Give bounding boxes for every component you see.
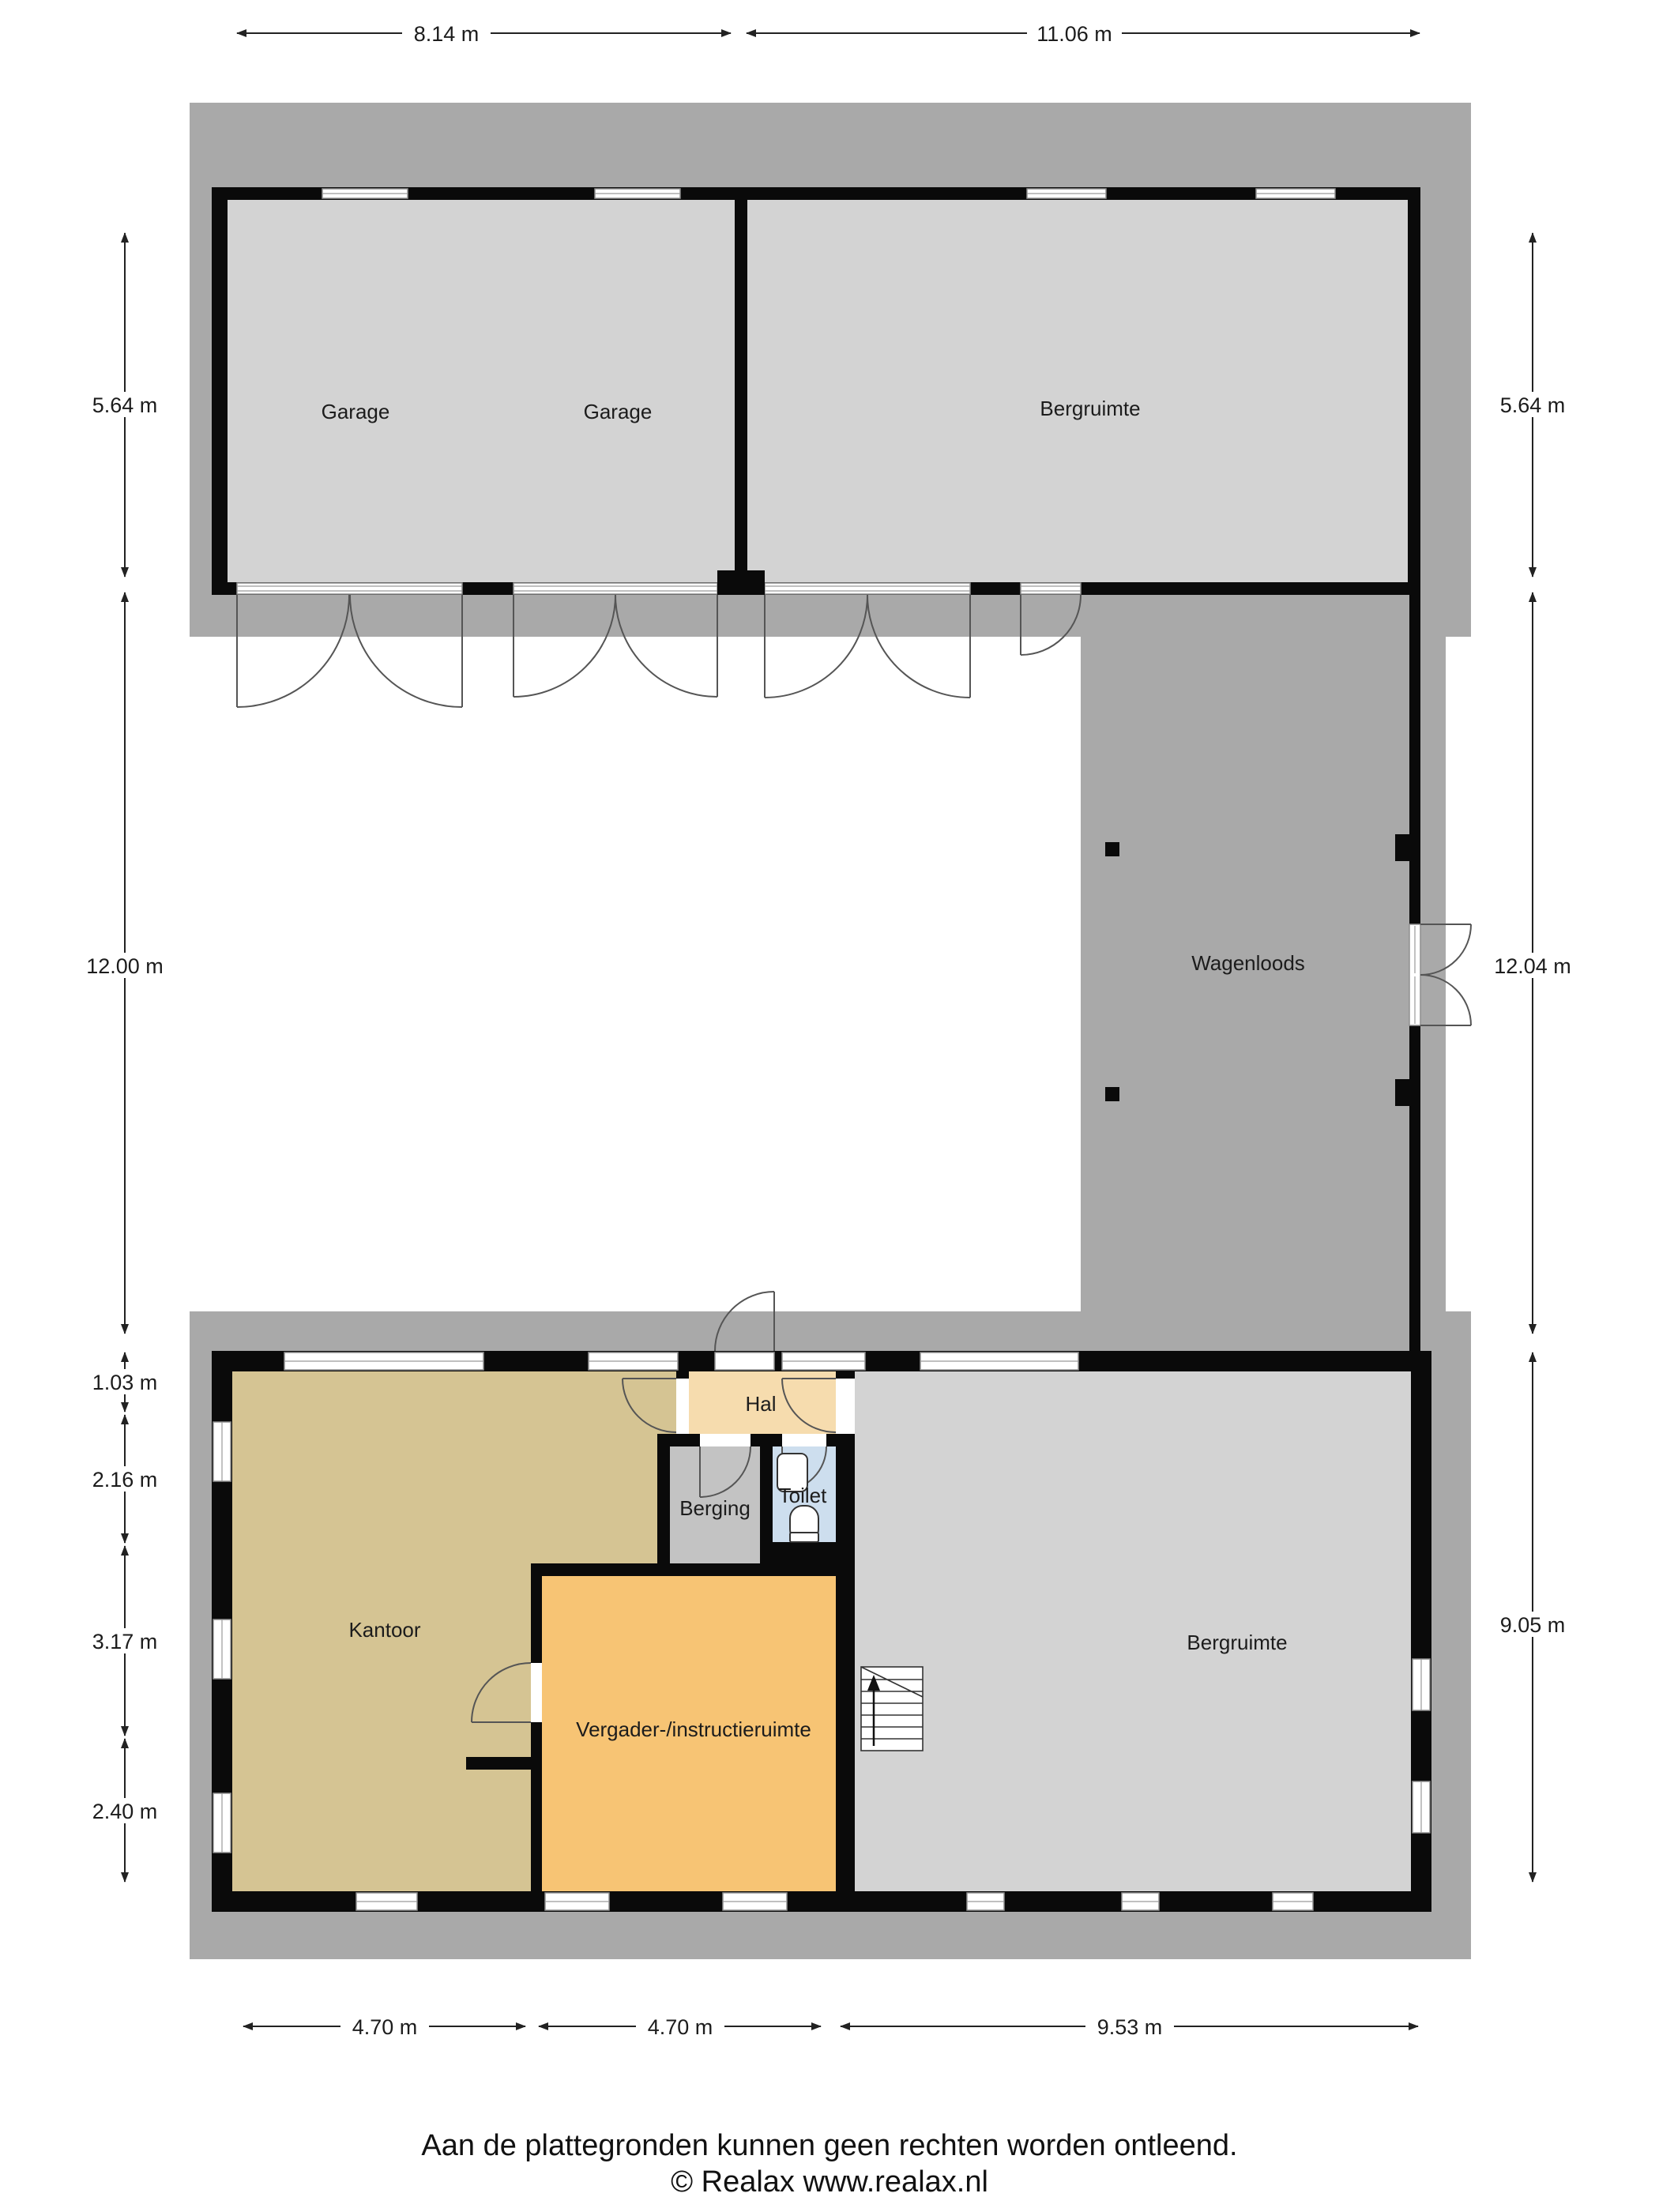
door-gap-hal-bergruimte <box>836 1379 855 1434</box>
room-label-hal: Hal <box>745 1392 776 1416</box>
dim-right-3: 9.05 m <box>1500 1613 1566 1637</box>
floorplan-page: Garage Garage Bergruimte Wagenloods <box>0 0 1659 2212</box>
room-label-kantoor: Kantoor <box>348 1618 420 1642</box>
room-label-bergruimte-bottom: Bergruimte <box>1187 1631 1287 1654</box>
dim-left-5: 3.17 m <box>92 1630 158 1653</box>
dim-top-1: 8.14 m <box>414 22 480 46</box>
room-label-toilet: Toilet <box>779 1484 827 1507</box>
wagenloods-right-wall-upper <box>1409 595 1420 924</box>
wall-stub <box>466 1757 542 1770</box>
room-label-bergruimte-top: Bergruimte <box>1040 397 1140 420</box>
garage-door <box>513 583 717 594</box>
door-gap-kantoor-hal <box>676 1379 689 1434</box>
footer-copyright: © Realax www.realax.nl <box>671 2165 988 2199</box>
floorplan-canvas: Garage Garage Bergruimte Wagenloods <box>0 0 1659 2212</box>
footer: Aan de plattegronden kunnen geen rechten… <box>421 2129 1237 2199</box>
door-gap-kantoor-vergader <box>531 1663 542 1722</box>
room-label-garage-left: Garage <box>322 400 390 423</box>
room-label-wagenloods: Wagenloods <box>1191 951 1305 975</box>
garage-door <box>765 583 970 594</box>
post <box>1105 1087 1119 1101</box>
entrance-door-opening <box>715 1352 774 1370</box>
dim-left-2: 12.00 m <box>86 954 164 978</box>
dim-top-2: 11.06 m <box>1036 22 1112 46</box>
room-label-garage-right: Garage <box>584 400 653 423</box>
wagenloods-right-wall-lower <box>1409 1025 1420 1351</box>
dim-bottom-2: 4.70 m <box>648 2015 713 2039</box>
dim-right-2: 12.04 m <box>1494 954 1571 978</box>
divider-footing <box>717 570 765 595</box>
room-label-vergader: Vergader-/instructieruimte <box>576 1717 811 1741</box>
footer-disclaimer: Aan de plattegronden kunnen geen rechten… <box>421 2129 1237 2162</box>
door-gap-berging <box>700 1434 750 1446</box>
dim-bottom-1: 4.70 m <box>352 2015 418 2039</box>
service-door <box>1021 583 1081 594</box>
dim-left-1: 5.64 m <box>92 393 158 417</box>
dim-left-6: 2.40 m <box>92 1800 158 1823</box>
dim-left-4: 2.16 m <box>92 1468 158 1492</box>
room-garage <box>228 200 735 582</box>
room-bergruimte-bottom <box>855 1371 1411 1891</box>
site-corridor <box>1081 637 1446 1335</box>
post <box>1105 842 1119 856</box>
wall-pier <box>1395 1079 1409 1106</box>
dim-bottom-3: 9.53 m <box>1097 2015 1163 2039</box>
dim-left-3: 1.03 m <box>92 1371 158 1394</box>
room-label-berging: Berging <box>679 1496 750 1520</box>
door-gap-toilet <box>782 1434 826 1446</box>
room-bergruimte-top <box>747 200 1408 582</box>
stairs <box>861 1667 923 1751</box>
wall-pier <box>1395 834 1409 861</box>
building-bottom: Hal Berging Toilet Kantoor Vergader-/ins… <box>212 1292 1431 1912</box>
dim-right-1: 5.64 m <box>1500 393 1566 417</box>
toilet-base <box>790 1533 818 1542</box>
garage-door <box>237 583 462 594</box>
